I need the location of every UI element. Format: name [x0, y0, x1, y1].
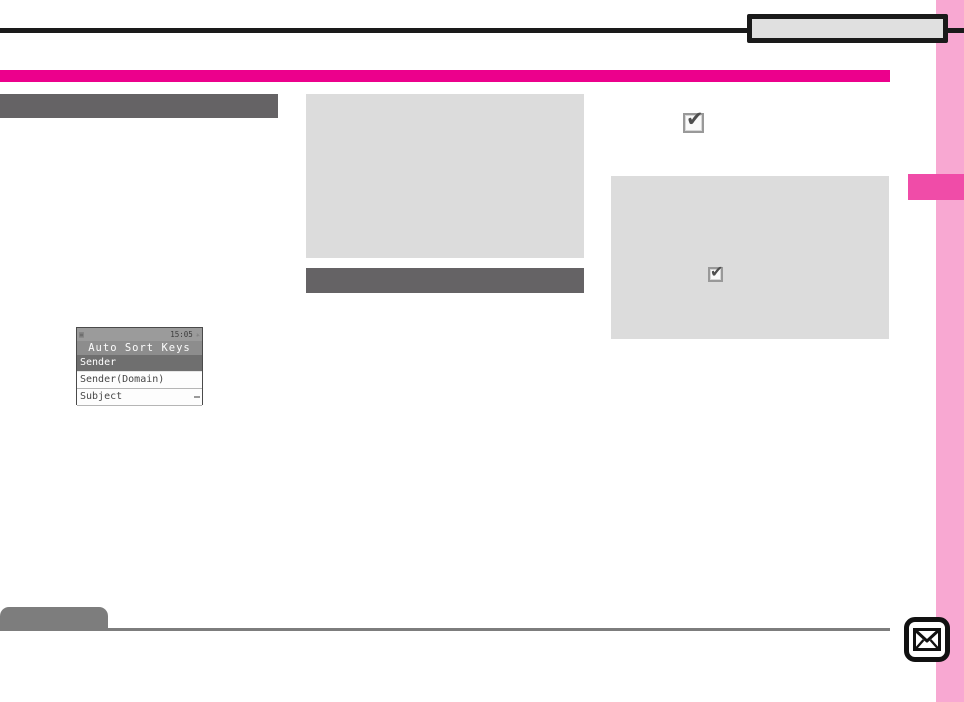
checkmark-icon: ✔	[710, 264, 723, 280]
menu-item-sender: Sender	[77, 355, 202, 372]
section-accent-bar	[0, 70, 890, 82]
right-margin-strip	[936, 0, 964, 702]
phone-screenshot: ▣ 15:05 ✳ Auto Sort Keys Sender Sender(D…	[76, 327, 203, 405]
mail-icon	[903, 616, 951, 663]
checkmark-icon: ✔	[686, 109, 704, 130]
envelope-icon	[903, 616, 951, 663]
manual-page: ✔ ✔ ▣ 15:05 ✳ Auto Sort Keys Sender Send…	[0, 0, 964, 702]
menu-item-label: Sender(Domain)	[80, 374, 164, 385]
checked-checkbox[interactable]: ✔	[683, 113, 704, 133]
footer-tab	[0, 607, 108, 628]
menu-item-label: Sender	[80, 357, 116, 368]
header-page-tab	[747, 14, 948, 43]
section-heading-placeholder	[0, 94, 278, 118]
status-time: 15:05	[170, 330, 193, 339]
checked-checkbox-inline[interactable]: ✔	[708, 267, 723, 282]
menu-item-sender-domain: Sender(Domain)	[77, 372, 202, 389]
phone-screen-title: Auto Sort Keys	[77, 341, 202, 355]
top-rule-right-segment	[948, 28, 964, 33]
phone-status-bar: ▣ 15:05 ✳	[77, 328, 202, 341]
status-sparkle-icon: ✳	[196, 331, 200, 339]
note-placeholder-box: ✔	[611, 176, 889, 339]
content-placeholder-box	[306, 94, 584, 258]
menu-item-label: Subject	[80, 391, 122, 402]
top-rule	[0, 28, 747, 33]
chapter-side-tab	[908, 174, 964, 200]
menu-item-subject: Subject	[77, 389, 202, 406]
scrollbar-tick	[194, 396, 200, 398]
status-app-icon: ▣	[79, 330, 84, 339]
footer-rule	[0, 628, 890, 631]
subsection-heading-placeholder	[306, 268, 584, 293]
